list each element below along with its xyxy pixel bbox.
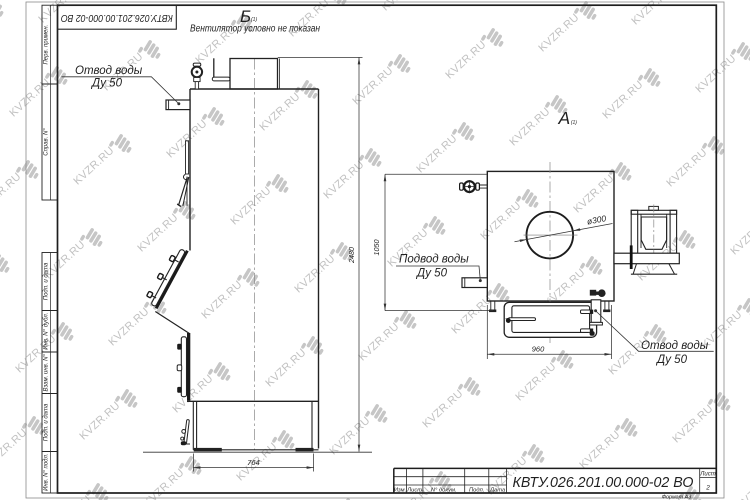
svg-text:(1): (1) — [251, 17, 257, 23]
svg-text:Инв. N° подл.: Инв. N° подл. — [44, 453, 50, 490]
svg-text:KVZR.RU: KVZR.RU — [327, 415, 372, 458]
svg-text:KVZR.RU: KVZR.RU — [664, 147, 709, 190]
svg-text:KVZR.RU: KVZR.RU — [536, 12, 581, 55]
svg-text:Инв. N° дубл.: Инв. N° дубл. — [44, 313, 50, 350]
svg-text:Дата: Дата — [489, 487, 506, 493]
svg-text:KVZR.RU: KVZR.RU — [513, 361, 558, 404]
svg-text:ø300: ø300 — [586, 213, 607, 226]
svg-text:Подп. и дата: Подп. и дата — [44, 403, 50, 441]
svg-text:960: 960 — [532, 345, 545, 354]
svg-text:KVZR.RU: KVZR.RU — [71, 145, 116, 188]
svg-text:KVZR.RU: KVZR.RU — [0, 171, 24, 214]
svg-text:Перв. примен.: Перв. примен. — [44, 25, 50, 65]
svg-text:N° докум.: N° докум. — [431, 487, 457, 493]
svg-text:Формат А3: Формат А3 — [662, 494, 692, 500]
svg-text:KVZR.RU: KVZR.RU — [670, 403, 715, 446]
svg-text:Подп. и дата: Подп. и дата — [44, 262, 50, 300]
svg-text:Лист: Лист — [699, 471, 715, 477]
svg-text:Изм.: Изм. — [394, 487, 406, 493]
svg-text:1050: 1050 — [372, 240, 381, 256]
svg-text:Ду 50: Ду 50 — [415, 268, 448, 280]
svg-text:Ду 50: Ду 50 — [655, 354, 688, 366]
svg-text:Отвод воды: Отвод воды — [641, 340, 709, 352]
svg-text:KVZR.RU: KVZR.RU — [141, 467, 186, 500]
svg-text:KVZR.RU: KVZR.RU — [571, 173, 616, 216]
svg-text:KVZR.RU: KVZR.RU — [443, 39, 488, 82]
svg-text:KVZR.RU: KVZR.RU — [600, 79, 645, 122]
svg-text:Взам. инв. N°: Взам. инв. N° — [44, 354, 50, 392]
svg-text:Подп.: Подп. — [469, 487, 484, 493]
svg-text:764: 764 — [247, 458, 260, 467]
svg-text:KVZR.RU: KVZR.RU — [106, 306, 151, 349]
svg-text:KVZR.RU: KVZR.RU — [420, 388, 465, 431]
svg-text:КВТУ.026.201.00.000-02 ВО: КВТУ.026.201.00.000-02 ВО — [61, 12, 173, 23]
svg-text:(1): (1) — [571, 120, 577, 126]
svg-text:KVZR.RU: KVZR.RU — [734, 470, 750, 500]
svg-text:KVZR.RU: KVZR.RU — [7, 77, 52, 120]
svg-text:KVZR.RU: KVZR.RU — [77, 400, 122, 443]
svg-text:KVZR.RU: KVZR.RU — [257, 91, 302, 134]
svg-text:2: 2 — [705, 485, 710, 492]
svg-text:КВТУ.026.201.00.000-02 ВО: КВТУ.026.201.00.000-02 ВО — [513, 475, 694, 491]
svg-text:KVZR.RU: KVZR.RU — [577, 429, 622, 472]
svg-text:KVZR.RU: KVZR.RU — [164, 118, 209, 161]
svg-text:KVZR.RU: KVZR.RU — [0, 427, 30, 470]
svg-text:Подвод воды: Подвод воды — [399, 254, 469, 266]
svg-text:Отвод воды: Отвод воды — [75, 65, 143, 77]
svg-text:KVZR.RU: KVZR.RU — [350, 65, 395, 108]
svg-text:KVZR.RU: KVZR.RU — [507, 106, 552, 149]
svg-text:А: А — [558, 108, 571, 128]
svg-text:KVZR.RU: KVZR.RU — [728, 215, 750, 258]
svg-text:2480: 2480 — [347, 247, 356, 264]
svg-text:KVZR.RU: KVZR.RU — [292, 253, 337, 296]
svg-text:KVZR.RU: KVZR.RU — [321, 159, 366, 202]
svg-text:Вентилятор условно не показан: Вентилятор условно не показан — [190, 24, 321, 35]
svg-text:KVZR.RU: KVZR.RU — [13, 333, 58, 376]
svg-text:KVZR.RU: KVZR.RU — [199, 279, 244, 322]
svg-text:KVZR.RU: KVZR.RU — [356, 321, 401, 364]
svg-text:KVZR.RU: KVZR.RU — [135, 212, 180, 255]
svg-text:KVZR.RU: KVZR.RU — [629, 0, 674, 27]
svg-text:KVZR.RU: KVZR.RU — [478, 200, 523, 243]
svg-text:KVZR.RU: KVZR.RU — [414, 133, 459, 176]
svg-text:KVZR.RU: KVZR.RU — [722, 0, 750, 1]
svg-text:Справ. N°: Справ. N° — [44, 128, 50, 156]
svg-text:KVZR.RU: KVZR.RU — [228, 185, 273, 228]
svg-text:KVZR.RU: KVZR.RU — [263, 347, 308, 390]
svg-text:Ду 50: Ду 50 — [90, 78, 123, 90]
svg-text:Лист: Лист — [406, 487, 422, 493]
